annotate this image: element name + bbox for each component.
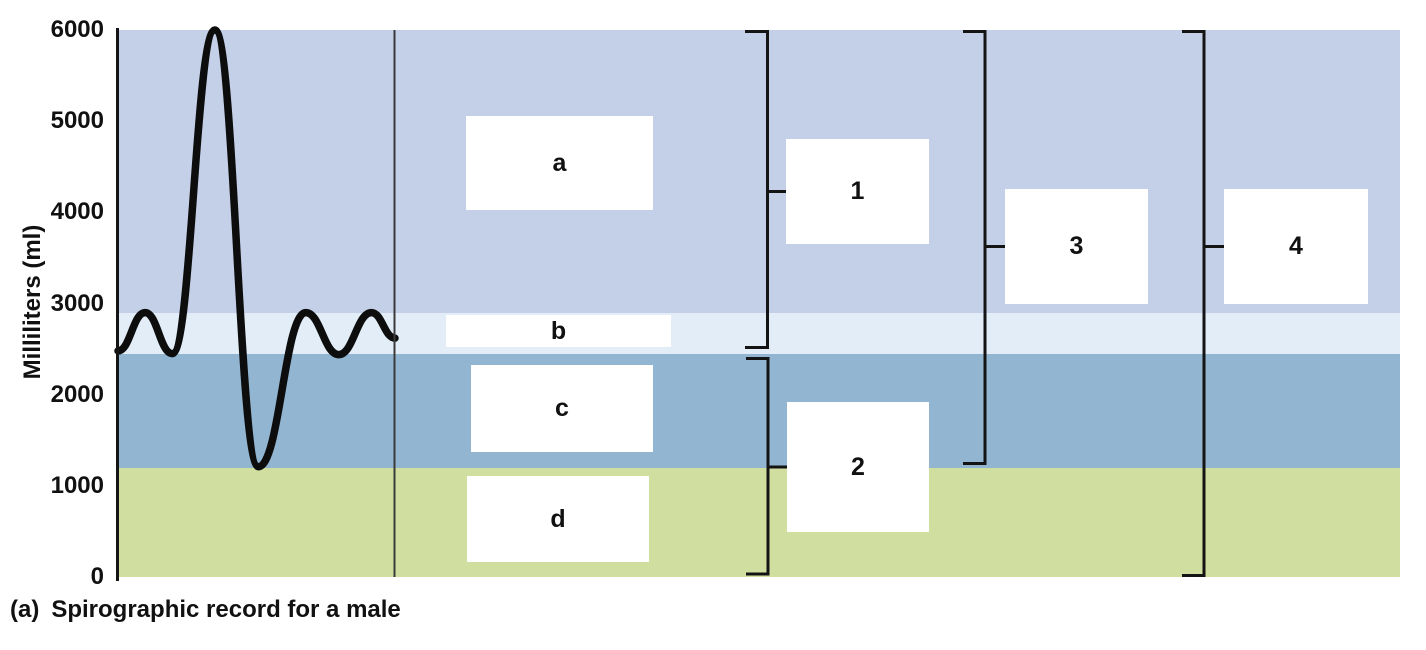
answer-box-d[interactable]: d — [467, 476, 649, 562]
answer-box-2[interactable]: 2 — [787, 402, 929, 532]
answer-box-1-label: 1 — [851, 177, 865, 206]
y-tick-label: 6000 — [0, 16, 104, 44]
caption-text: Spirographic record for a male — [51, 596, 400, 624]
answer-box-c[interactable]: c — [471, 365, 653, 452]
band-inspiratory-reserve-zone — [118, 30, 1400, 313]
answer-box-a-label: a — [553, 149, 567, 178]
y-tick-label: 2000 — [0, 381, 104, 409]
y-tick-label: 5000 — [0, 107, 104, 135]
figure-caption: (a) Spirographic record for a male — [10, 596, 401, 624]
answer-box-1[interactable]: 1 — [786, 139, 929, 244]
band-tidal-volume-zone — [118, 313, 1400, 354]
answer-box-3-label: 3 — [1070, 232, 1084, 261]
answer-box-4-label: 4 — [1289, 232, 1303, 261]
answer-box-b[interactable]: b — [446, 315, 671, 347]
answer-box-d-label: d — [550, 505, 565, 534]
answer-box-b-label: b — [551, 317, 566, 346]
answer-box-2-label: 2 — [851, 453, 865, 482]
y-tick-label: 1000 — [0, 472, 104, 500]
answer-box-4[interactable]: 4 — [1224, 189, 1368, 304]
answer-box-3[interactable]: 3 — [1005, 189, 1148, 304]
caption-prefix: (a) — [10, 596, 39, 624]
y-tick-label: 3000 — [0, 290, 104, 318]
plot-area — [118, 30, 1400, 577]
answer-box-c-label: c — [555, 394, 569, 423]
answer-box-a[interactable]: a — [466, 116, 653, 210]
spirogram-figure: Milliliters (ml) 60005000400030002000100… — [0, 0, 1426, 650]
band-residual-volume-zone — [118, 468, 1400, 577]
band-expiratory-reserve-zone — [118, 354, 1400, 468]
y-tick-label: 4000 — [0, 198, 104, 226]
y-tick-label: 0 — [0, 563, 104, 591]
